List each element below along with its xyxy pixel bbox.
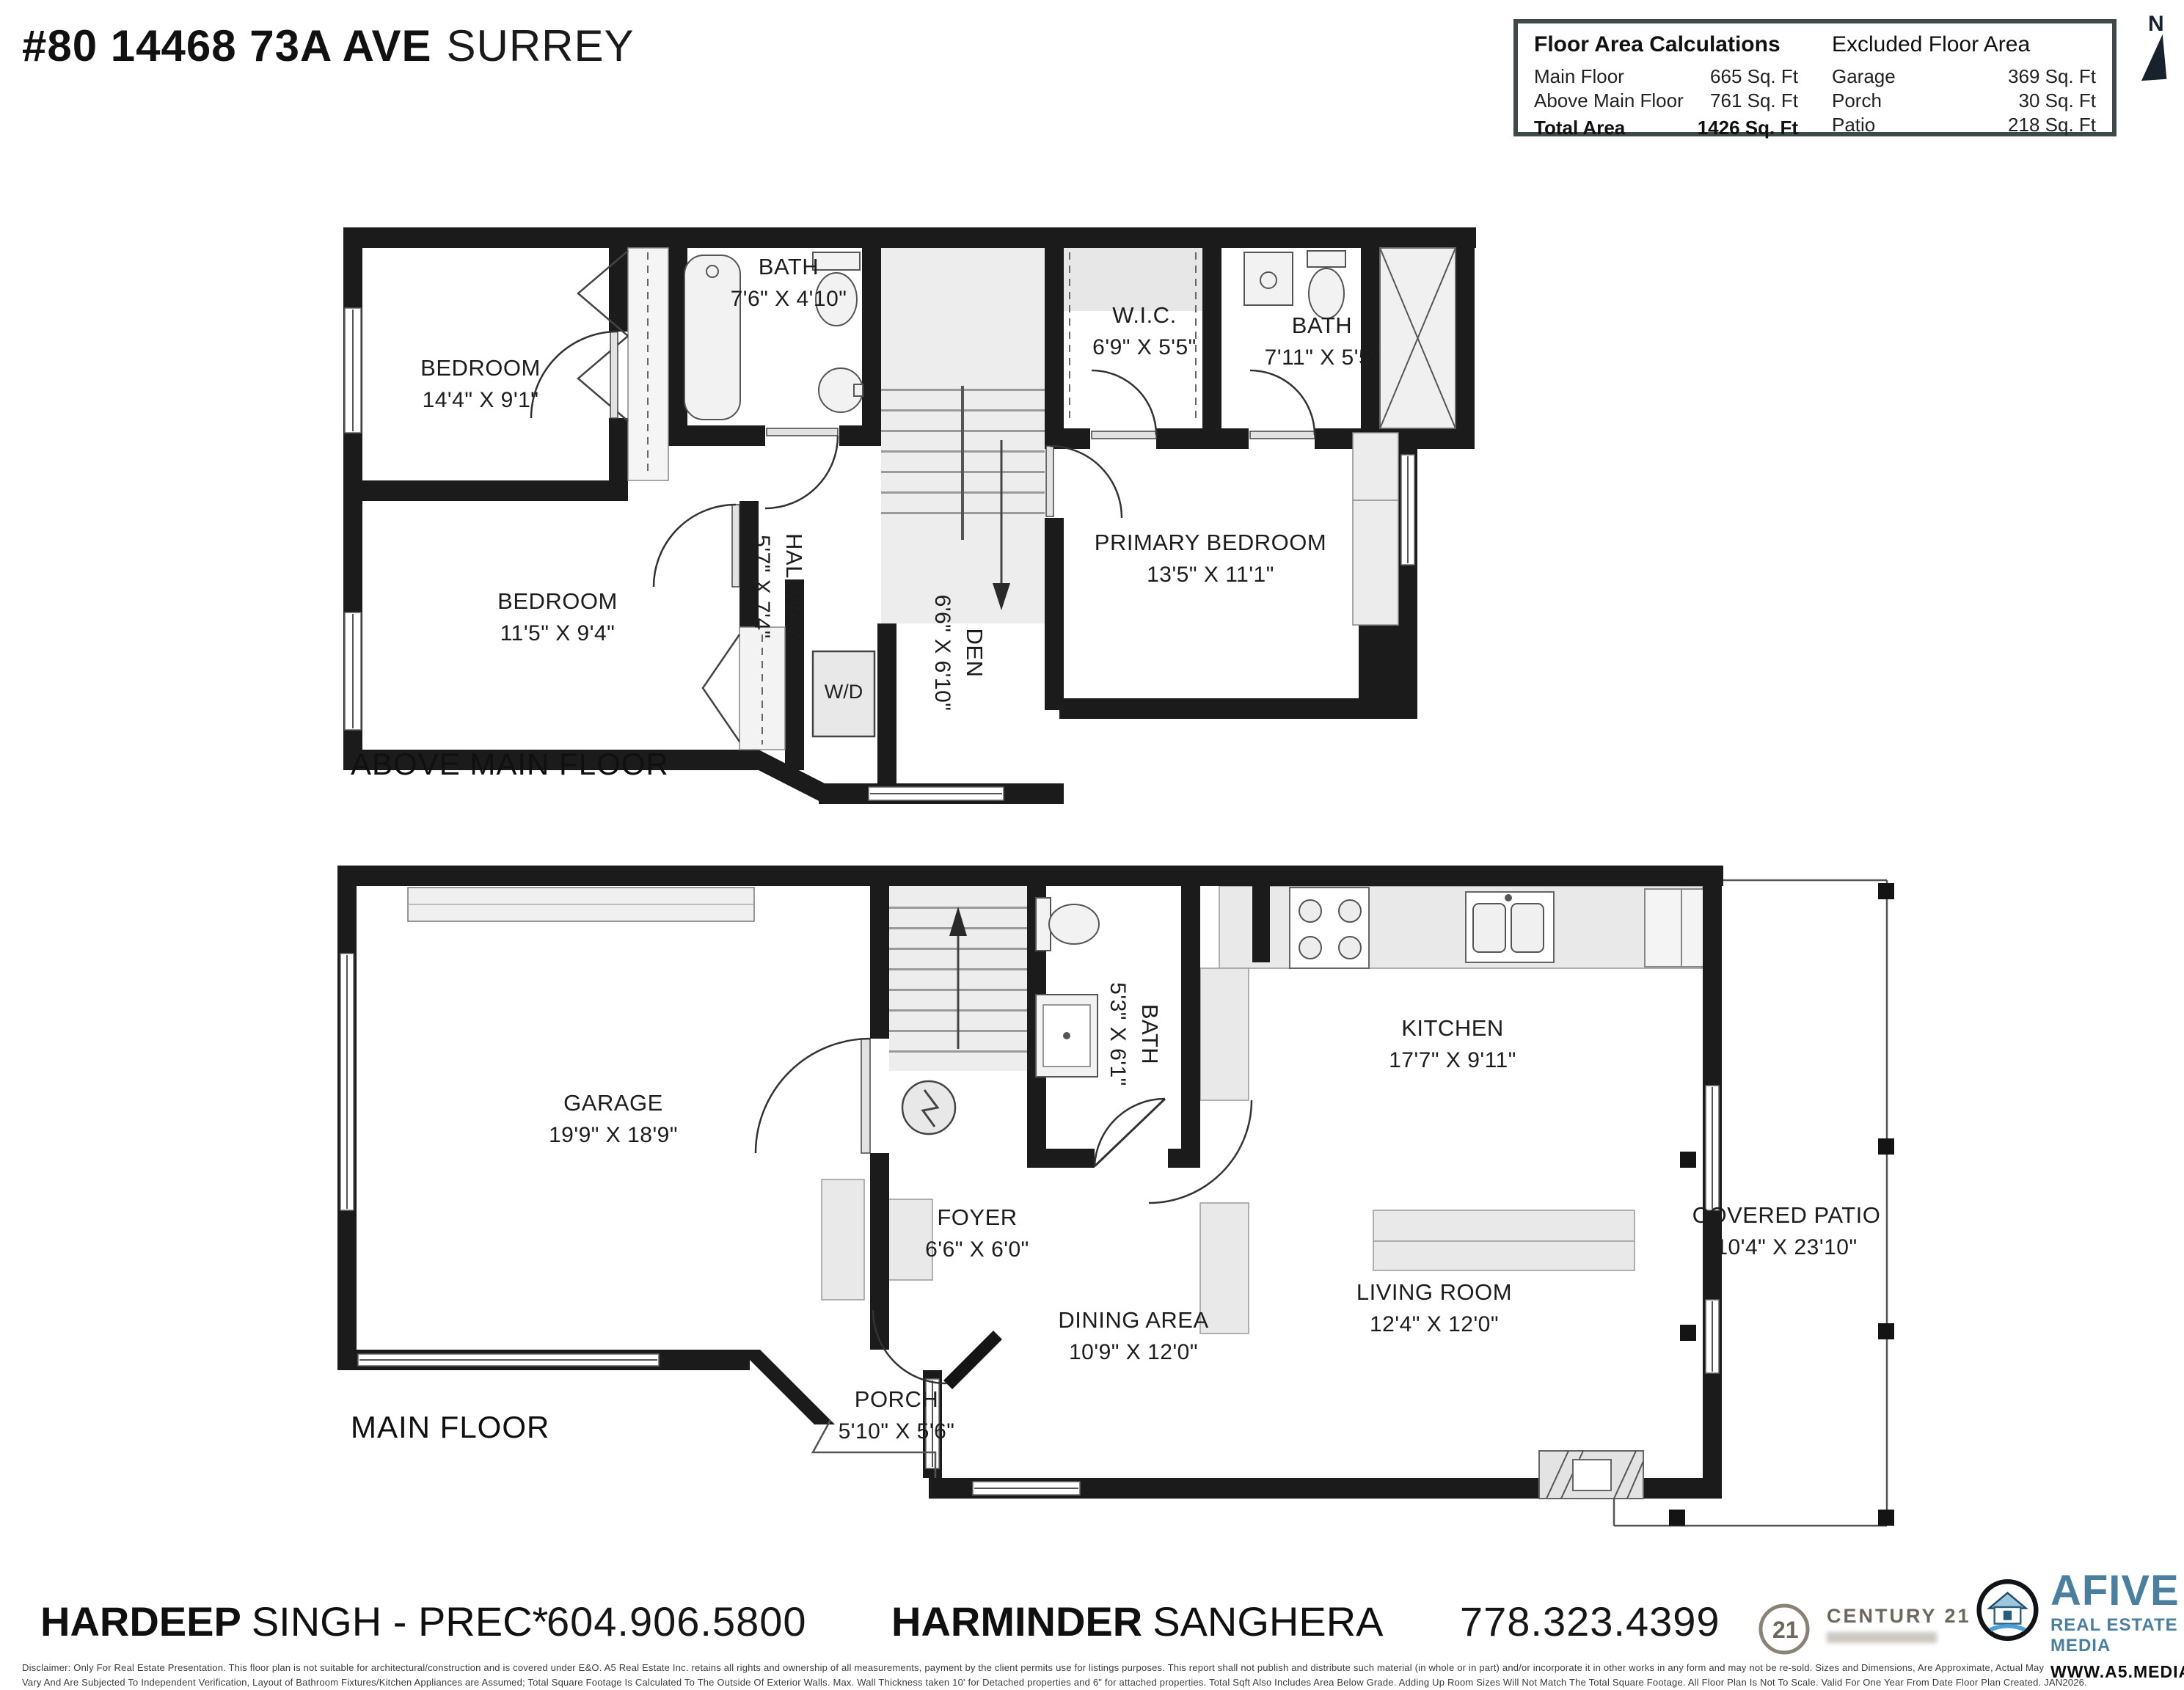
garage-storage [822,1179,864,1300]
row-label: Total Area [1534,116,1625,140]
afive-name: AFIVE [2050,1570,2184,1612]
room-dims: 10'4" X 23'10" [1654,1232,1918,1264]
row-value: 761 Sq. Ft [1710,89,1798,113]
room-label-covered-patio: COVERED PATIO 10'4" X 23'10" [1654,1199,1918,1264]
agent-1-phone: 604.906.5800 [547,1598,807,1645]
floor-title-main: MAIN FLOOR [351,1410,549,1445]
room-name: HALLWAY [778,491,810,682]
disclaimer-line-1: Disclaimer: Only For Real Estate Present… [22,1662,2044,1673]
kitchen-sink-icon [1466,892,1554,962]
room-name: DEN [958,557,990,748]
century21-subtext-blurred [1827,1632,1937,1643]
room-name: BATH [682,251,895,283]
room-name: BATH [1133,939,1166,1130]
north-arrow-icon: N [2133,9,2177,91]
toilet-icon [1036,898,1099,951]
front-door [943,1331,1002,1389]
table-row: Main Floor 665 Sq. Ft [1534,65,1798,89]
main-floor-plan: GARAGE 19'9" X 18'9" BATH 5'3" X 6'1" KI… [337,866,1929,1606]
sink-icon [819,368,863,412]
room-name: LIVING ROOM [1306,1276,1563,1309]
above-main-floor-plan: BEDROOM 14'4" X 9'1" BATH 7'6" X 4'10" W… [337,213,1482,814]
svg-text:N: N [2148,12,2164,36]
row-value: 218 Sq. Ft [2008,113,2096,137]
fireplace [1539,1451,1643,1499]
excluded-area-column: Excluded Floor Area Garage 369 Sq. Ft Po… [1832,32,2096,123]
sink-icon [1244,252,1293,305]
above-main-floor-plan-drawing [337,213,1482,814]
floor-area-title: Floor Area Calculations [1534,32,1798,57]
room-label-bedroom: BEDROOM 14'4" X 9'1" [370,352,591,417]
room-label-den: DEN 6'6" X 6'10" [926,557,990,748]
century21-name: CENTURY 21 [1827,1605,1971,1628]
room-dims: 14'4" X 9'1" [370,384,591,417]
room-dims: 17'7" X 9'11" [1324,1045,1581,1077]
room-name: BATH [1227,310,1417,342]
agent-2: HARMINDERSANGHERA [891,1598,1384,1645]
room-dims: 5'3" X 6'1" [1101,939,1133,1130]
kitchen-counters [1200,886,1703,1334]
room-name: PRIMARY BEDROOM [1086,527,1335,559]
room-label-primary-bedroom: PRIMARY BEDROOM 13'5" X 11'1" [1086,527,1335,591]
agent-last-name: SANGHERA [1153,1598,1383,1645]
sink-icon [1036,995,1098,1077]
room-name: FOYER [878,1201,1076,1234]
row-label: Patio [1832,113,1875,137]
floor-plan-page: #80 14468 73A AVESURREY Floor Area Calcu… [0,0,2184,1690]
room-name: GARAGE [467,1087,760,1119]
agent-first-name: HARDEEP [40,1598,241,1645]
row-label: Porch [1832,89,1882,113]
row-label: Above Main Floor [1534,89,1684,113]
room-dims: 7'6" X 4'10" [682,283,895,315]
room-label-bath: BATH 7'6" X 4'10" [682,251,895,315]
room-name: PORCH [816,1383,977,1416]
room-dims: 10'9" X 12'0" [1005,1336,1262,1369]
table-row: Above Main Floor 761 Sq. Ft [1534,89,1798,113]
row-label: Garage [1832,65,1896,89]
floor-title-above-main: ABOVE MAIN FLOOR [351,747,669,782]
room-dims: 11'5" X 9'4" [448,618,668,650]
table-row: Garage 369 Sq. Ft [1832,65,2096,89]
row-value: 30 Sq. Ft [2019,89,2097,113]
city-text: SURREY [447,21,635,70]
electrical-panel-icon [902,1081,955,1134]
room-dims: 6'6" X 6'0" [878,1234,1076,1266]
room-label-bath: BATH 5'3" X 6'1" [1101,939,1166,1130]
row-value: 1426 Sq. Ft [1698,116,1798,140]
room-label-hallway: HALLWAY 5'7" X 7'4" [745,491,810,682]
stairs [889,886,1027,1071]
garage-door [408,888,754,921]
room-label-bath: BATH 7'11" X 5'5" [1227,310,1417,374]
agent-first-name: HARMINDER [891,1598,1142,1645]
svg-text:21: 21 [1772,1617,1799,1643]
room-name: W.I.C. [1064,299,1225,332]
agent-1: HARDEEPSINGH - PREC* [40,1598,548,1645]
row-label: Main Floor [1534,65,1624,89]
agent-2-phone: 778.323.4399 [1460,1598,1720,1645]
row-value: 369 Sq. Ft [2008,65,2096,89]
century21-circle-icon: 21 [1755,1598,1818,1661]
room-label-bedroom-2: BEDROOM 11'5" X 9'4" [448,585,668,650]
room-label-dining-area: DINING AREA 10'9" X 12'0" [1005,1304,1262,1369]
room-label-foyer: FOYER 6'6" X 6'0" [878,1201,1076,1266]
room-label-wic: W.I.C. 6'9" X 5'5" [1064,299,1225,364]
room-name: BEDROOM [448,585,668,618]
total-area-row: Total Area 1426 Sq. Ft [1534,116,1798,140]
century21-logo: 21 CENTURY 21 [1755,1598,1971,1661]
afive-circle-icon [1975,1570,2040,1650]
stove-icon [1290,888,1369,968]
floor-area-calculations-box: Floor Area Calculations Main Floor 665 S… [1513,19,2117,136]
room-label-living-room: LIVING ROOM 12'4" X 12'0" [1306,1276,1563,1341]
afive-tagline: REAL ESTATE MEDIA [2050,1615,2184,1656]
excluded-area-title: Excluded Floor Area [1832,32,2096,57]
room-dims: 19'9" X 18'9" [467,1119,760,1152]
room-name: DINING AREA [1005,1304,1262,1336]
table-row: Porch 30 Sq. Ft [1832,89,2096,113]
room-label-kitchen: KITCHEN 17'7" X 9'11" [1324,1012,1581,1077]
agent-last-name: SINGH - PREC* [252,1598,549,1645]
room-dims: 5'10" X 5'6" [816,1416,977,1448]
room-dims: 6'6" X 6'10" [926,557,958,748]
room-dims: 7'11" X 5'5" [1227,342,1417,374]
table-row: Patio 218 Sq. Ft [1832,113,2096,137]
room-label-garage: GARAGE 19'9" X 18'9" [467,1087,760,1152]
toilet-icon [1307,251,1345,318]
room-dims: 13'5" X 11'1" [1086,559,1335,591]
room-name: BEDROOM [370,352,591,384]
page-title: #80 14468 73A AVESURREY [22,21,635,71]
row-value: 665 Sq. Ft [1710,65,1798,89]
washer-dryer-label: W/D [813,681,874,703]
room-name: COVERED PATIO [1654,1199,1918,1232]
room-dims: 12'4" X 12'0" [1306,1309,1563,1341]
address-text: #80 14468 73A AVE [22,21,432,70]
disclaimer-line-2: Vary And Are Subjected To Independent Ve… [22,1677,2087,1688]
room-label-porch: PORCH 5'10" X 5'6" [816,1383,977,1448]
afive-text: AFIVE REAL ESTATE MEDIA WWW.A5.MEDIA [2050,1570,2184,1682]
room-name: KITCHEN [1324,1012,1581,1045]
room-dims: 6'9" X 5'5" [1064,332,1225,364]
floor-area-column: Floor Area Calculations Main Floor 665 S… [1534,32,1798,123]
century21-text: CENTURY 21 [1827,1598,1971,1643]
room-dims: 5'7" X 7'4" [745,491,778,682]
